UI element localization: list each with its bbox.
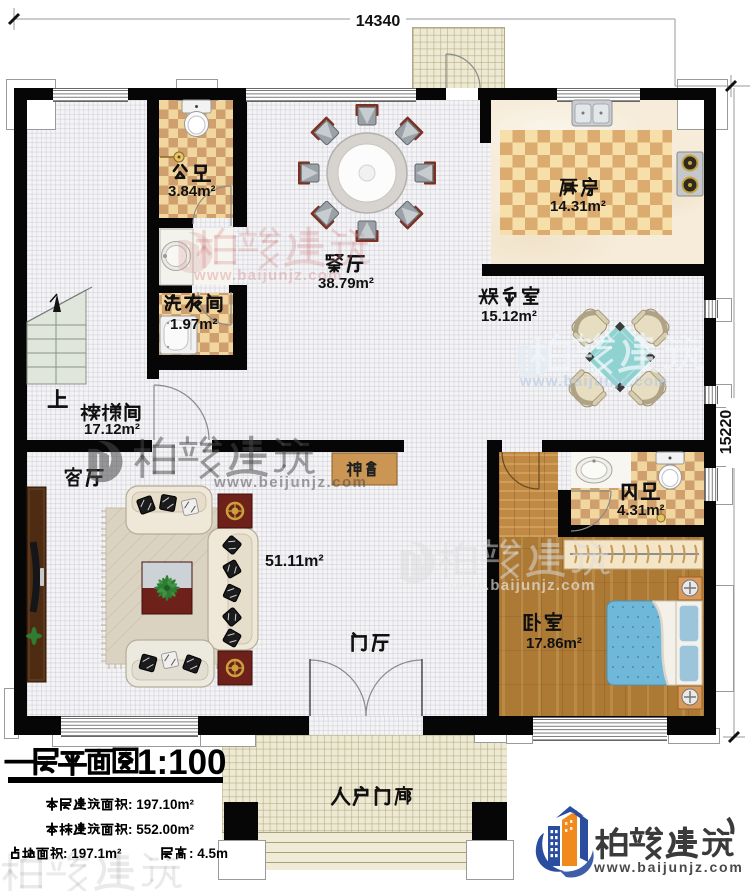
- svg-text:17.86m²: 17.86m²: [526, 635, 582, 652]
- svg-text:: 4.5m: : 4.5m: [189, 846, 228, 861]
- svg-text:www.baijunjz.com: www.baijunjz.com: [519, 373, 669, 390]
- svg-text:4.31m²: 4.31m²: [617, 502, 665, 519]
- svg-text:3.84m²: 3.84m²: [168, 183, 216, 200]
- svg-text:17.12m²: 17.12m²: [84, 421, 140, 438]
- svg-text:www.baijunjz.com: www.baijunjz.com: [446, 577, 596, 594]
- svg-text:: 197.10m²: : 197.10m²: [128, 797, 195, 812]
- svg-text:15.12m²: 15.12m²: [481, 308, 537, 325]
- svg-text:www.baijunjz.com: www.baijunjz.com: [193, 267, 343, 284]
- svg-text:51.11m²: 51.11m²: [265, 553, 324, 570]
- svg-text:1.97m²: 1.97m²: [170, 316, 218, 333]
- svg-text:14.31m²: 14.31m²: [550, 198, 606, 215]
- svg-text:1:100: 1:100: [137, 743, 227, 782]
- svg-text:www.baijunjz.com: www.baijunjz.com: [593, 859, 744, 875]
- svg-text:: 552.00m²: : 552.00m²: [128, 822, 195, 837]
- svg-text:15220: 15220: [718, 410, 735, 455]
- svg-text:: 197.1m²: : 197.1m²: [63, 846, 122, 861]
- svg-text:14340: 14340: [356, 13, 401, 30]
- svg-text:www.beijunjz.com: www.beijunjz.com: [213, 474, 367, 491]
